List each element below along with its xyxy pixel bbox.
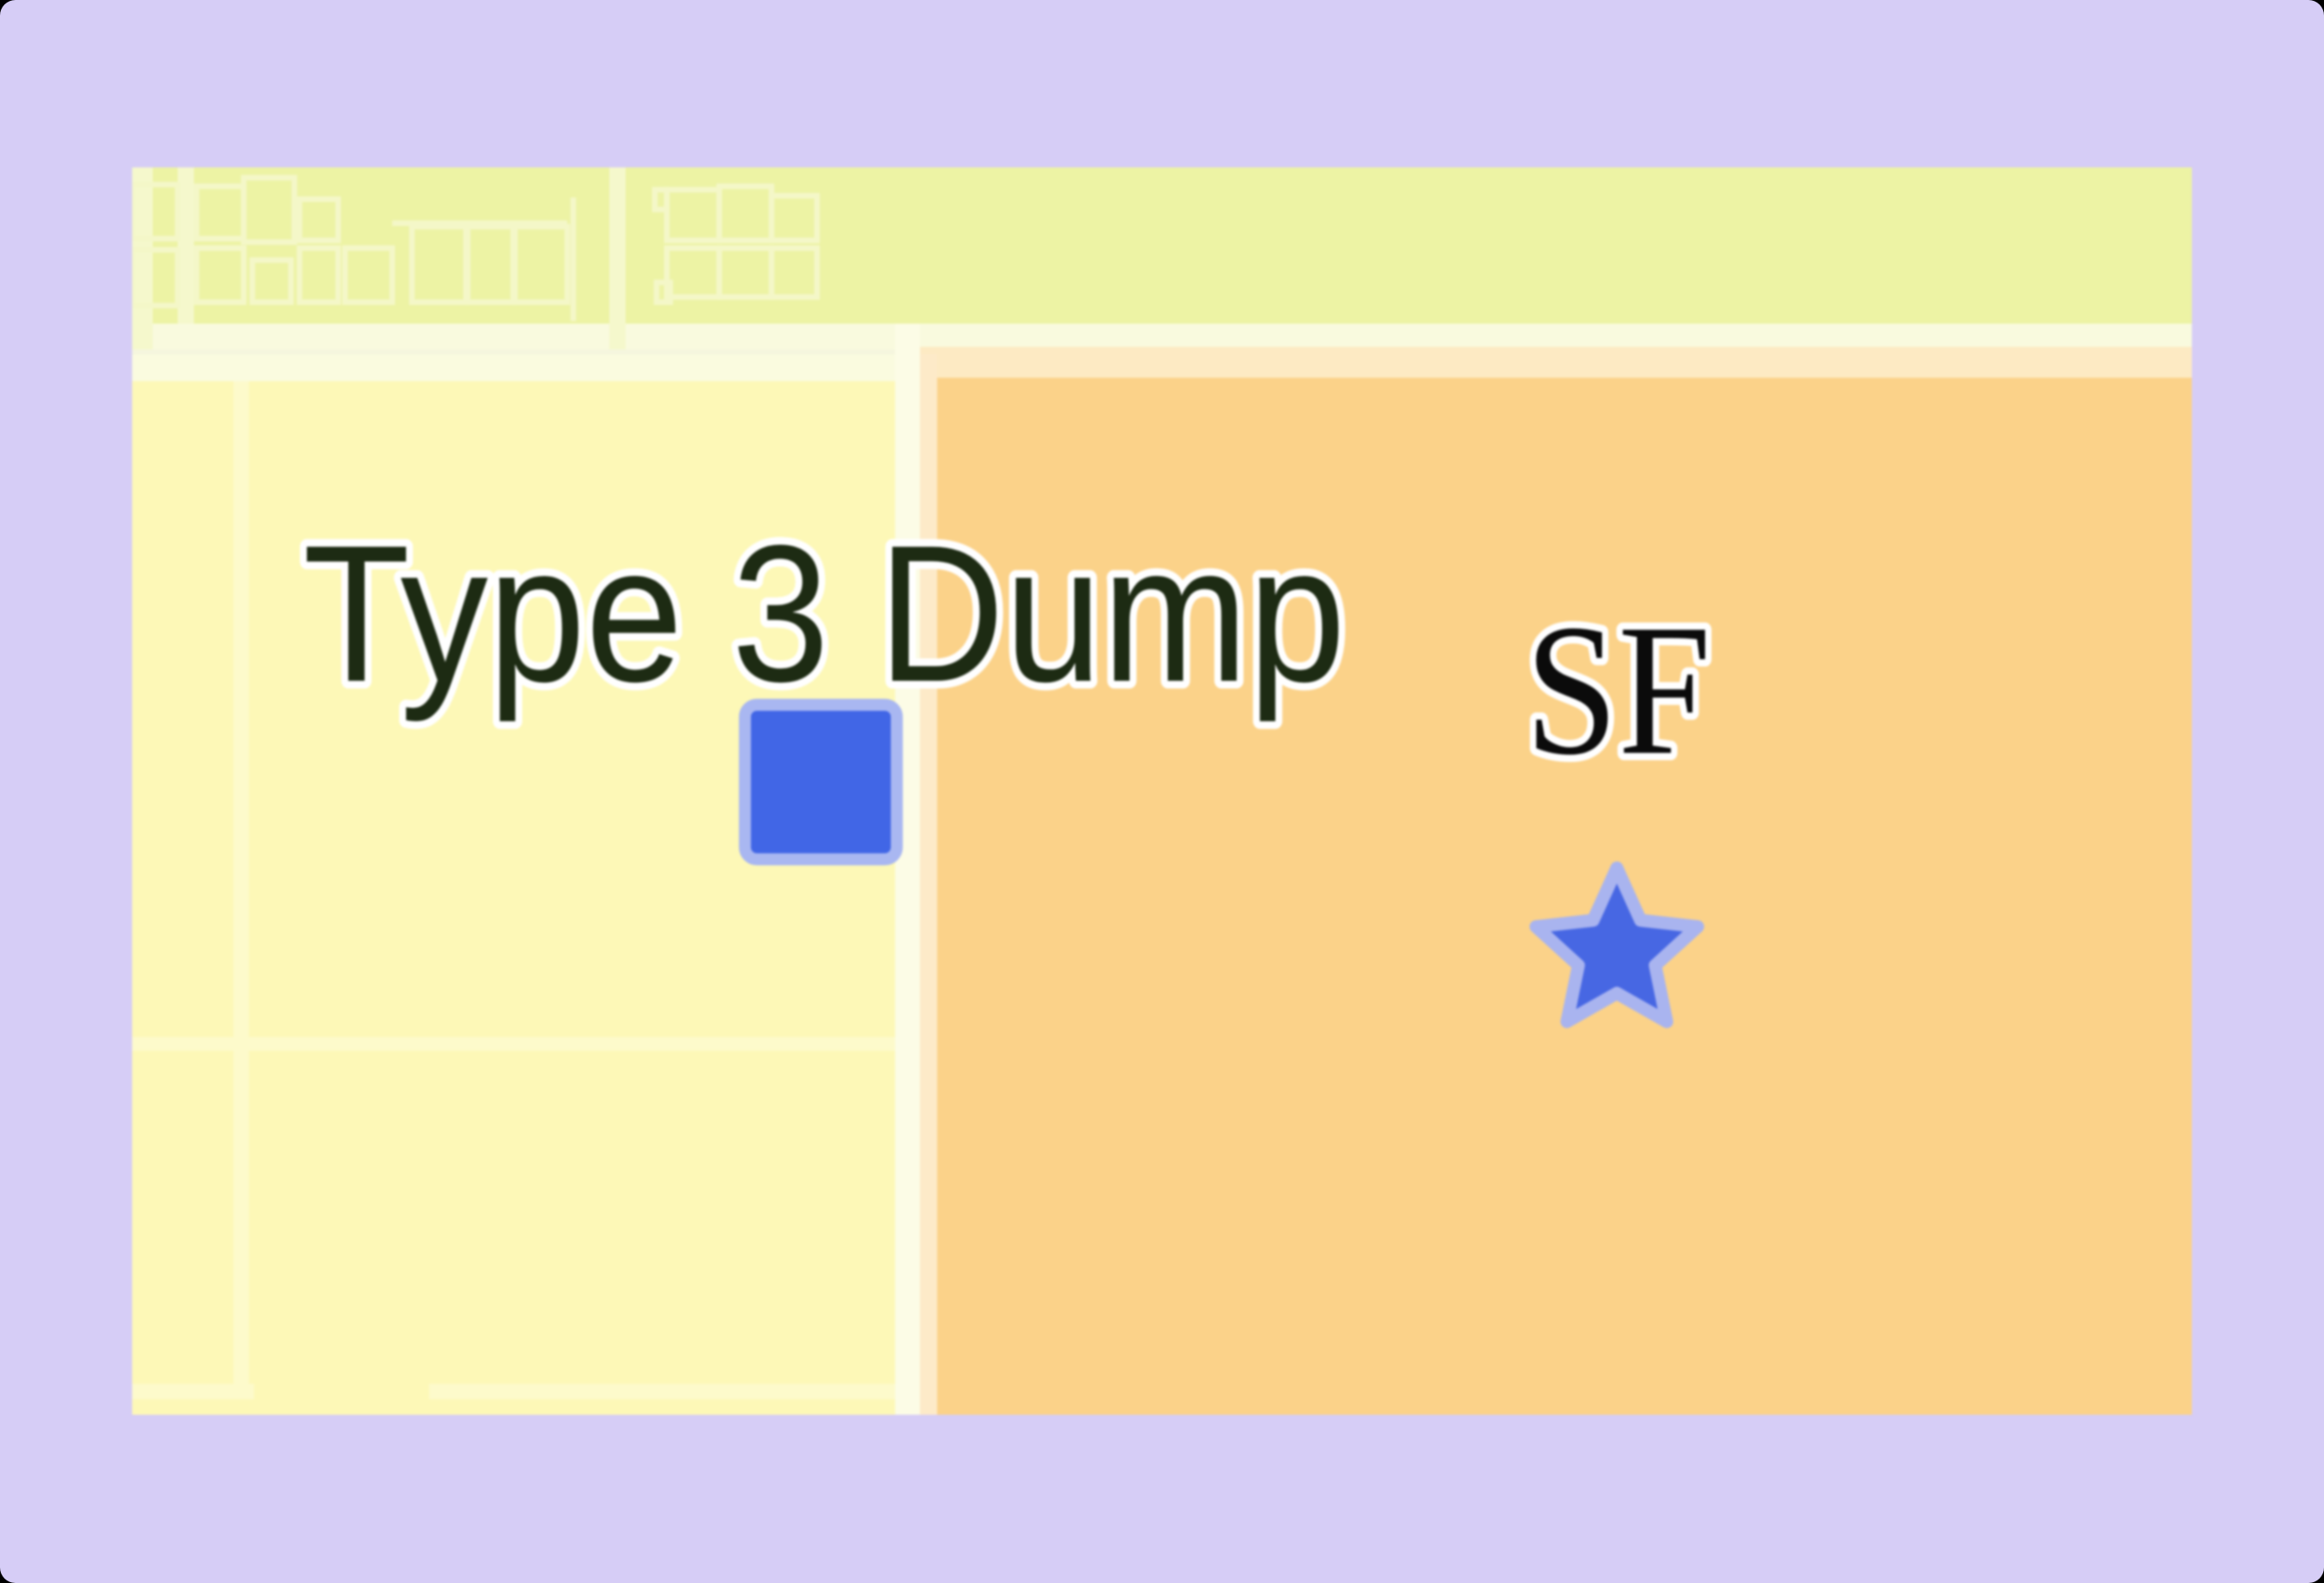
svg-text:Type 3 Dump: Type 3 Dump (303, 505, 1346, 722)
svg-text:SF: SF (1525, 585, 1711, 794)
